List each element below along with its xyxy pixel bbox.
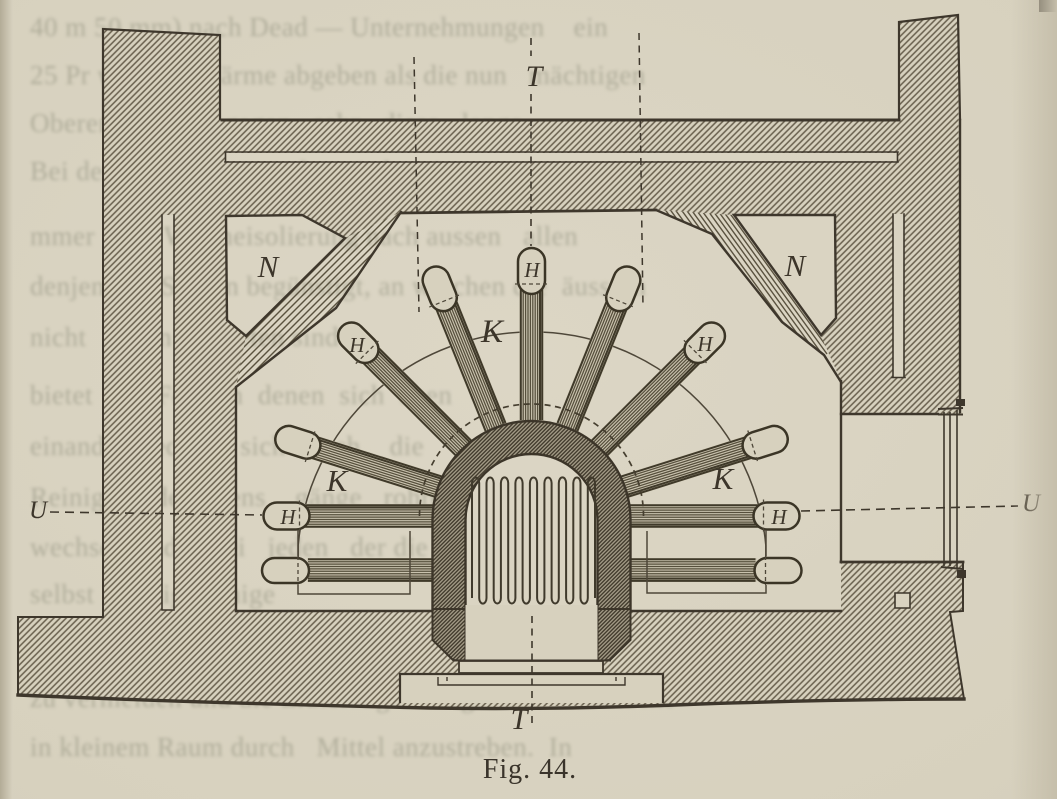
svg-text:T: T (511, 703, 530, 736)
svg-text:T: T (526, 60, 545, 93)
svg-text:H: H (348, 333, 366, 357)
svg-text:N: N (257, 249, 281, 284)
svg-text:U: U (29, 497, 49, 524)
svg-text:H: H (523, 258, 541, 282)
svg-text:H: H (279, 505, 297, 529)
svg-text:K: K (712, 461, 736, 496)
svg-text:H: H (770, 505, 788, 529)
svg-text:H: H (696, 332, 714, 356)
svg-text:K: K (326, 463, 350, 498)
svg-text:K: K (480, 314, 505, 350)
svg-text:N: N (784, 248, 808, 283)
